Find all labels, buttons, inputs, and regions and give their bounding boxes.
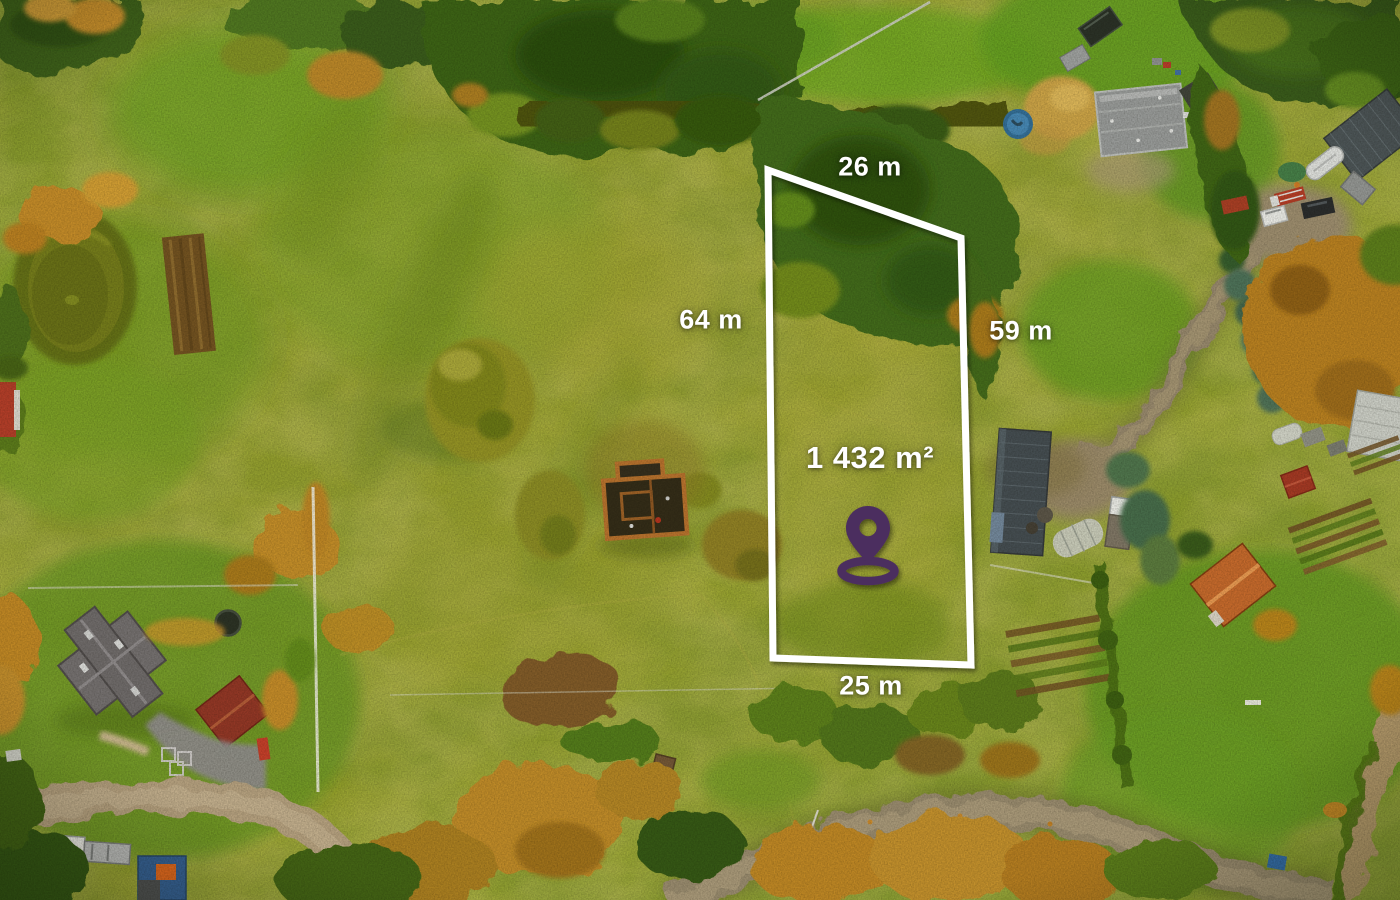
- dimension-label-top: 26 m: [838, 152, 902, 183]
- dimension-label-bottom: 25 m: [839, 671, 903, 702]
- area-label: 1 432 m²: [806, 440, 934, 476]
- aerial-photo-background: [0, 0, 1400, 900]
- dimension-label-right: 59 m: [989, 316, 1053, 347]
- aerial-photo: 26 m 64 m 59 m 1 432 m² 25 m: [0, 0, 1400, 900]
- dimension-label-left: 64 m: [679, 305, 743, 336]
